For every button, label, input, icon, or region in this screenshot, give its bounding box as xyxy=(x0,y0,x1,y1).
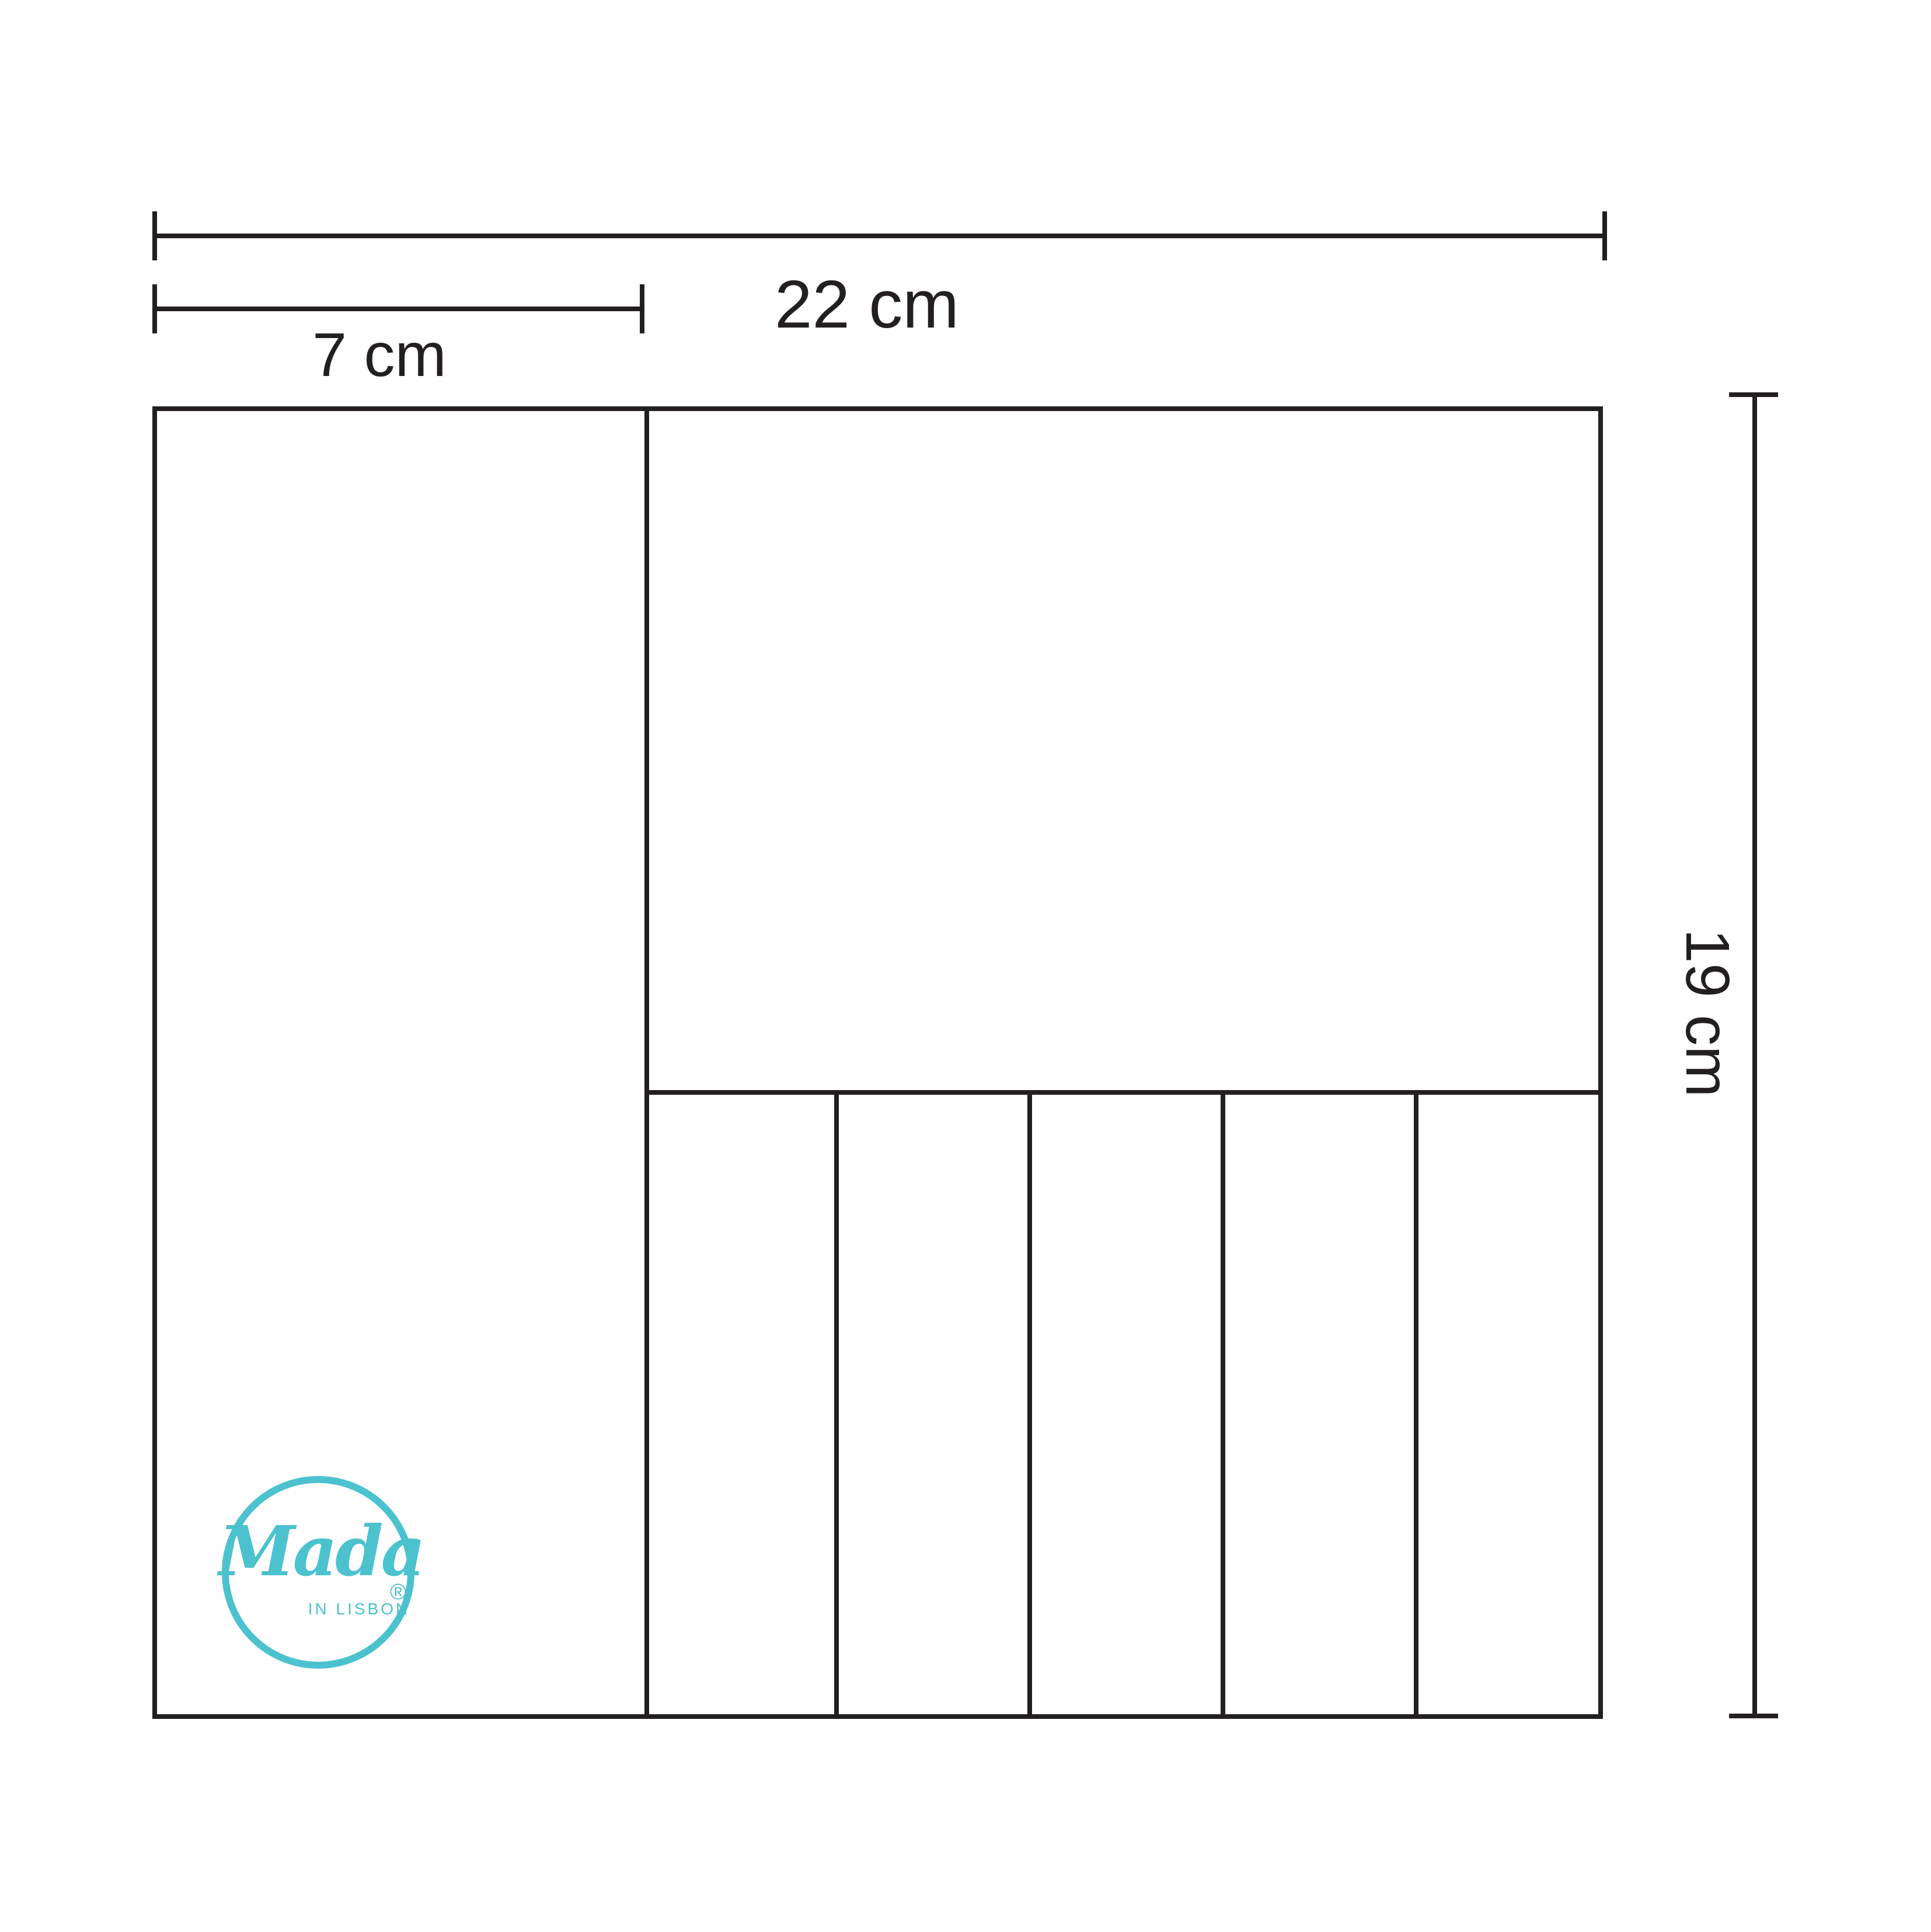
dimension-tick-total-width-right xyxy=(1602,211,1607,260)
dimension-line-left-column-width xyxy=(152,307,644,311)
logo-tagline-text: IN LISBON xyxy=(254,1600,464,1618)
divider-top-compartment xyxy=(644,1090,1598,1095)
divider-left-column xyxy=(644,411,649,1714)
divider-slot-4 xyxy=(1414,1090,1418,1714)
dimension-label-total-width: 22 cm xyxy=(715,267,1019,342)
dimension-tick-total-height-bottom xyxy=(1729,1714,1778,1718)
dimension-tick-left-column-right xyxy=(640,284,644,333)
divider-slot-1 xyxy=(834,1090,839,1714)
divider-slot-2 xyxy=(1027,1090,1032,1714)
dimension-tick-total-width-left xyxy=(152,211,157,260)
logo-brand-text: Mada xyxy=(219,1517,417,1586)
dimension-line-total-width xyxy=(152,234,1607,238)
dimension-line-total-height xyxy=(1752,392,1757,1718)
dimension-tick-total-height-top xyxy=(1729,392,1778,397)
dimension-label-total-height: 19 cm xyxy=(1667,861,1748,1165)
dimension-tick-left-column-left xyxy=(152,284,157,333)
dimension-label-left-column-width: 7 cm xyxy=(245,321,514,389)
divider-slot-3 xyxy=(1221,1090,1225,1714)
dimension-diagram: 22 cm 7 cm 19 cm Mada ® IN LISBON xyxy=(0,0,1931,1932)
